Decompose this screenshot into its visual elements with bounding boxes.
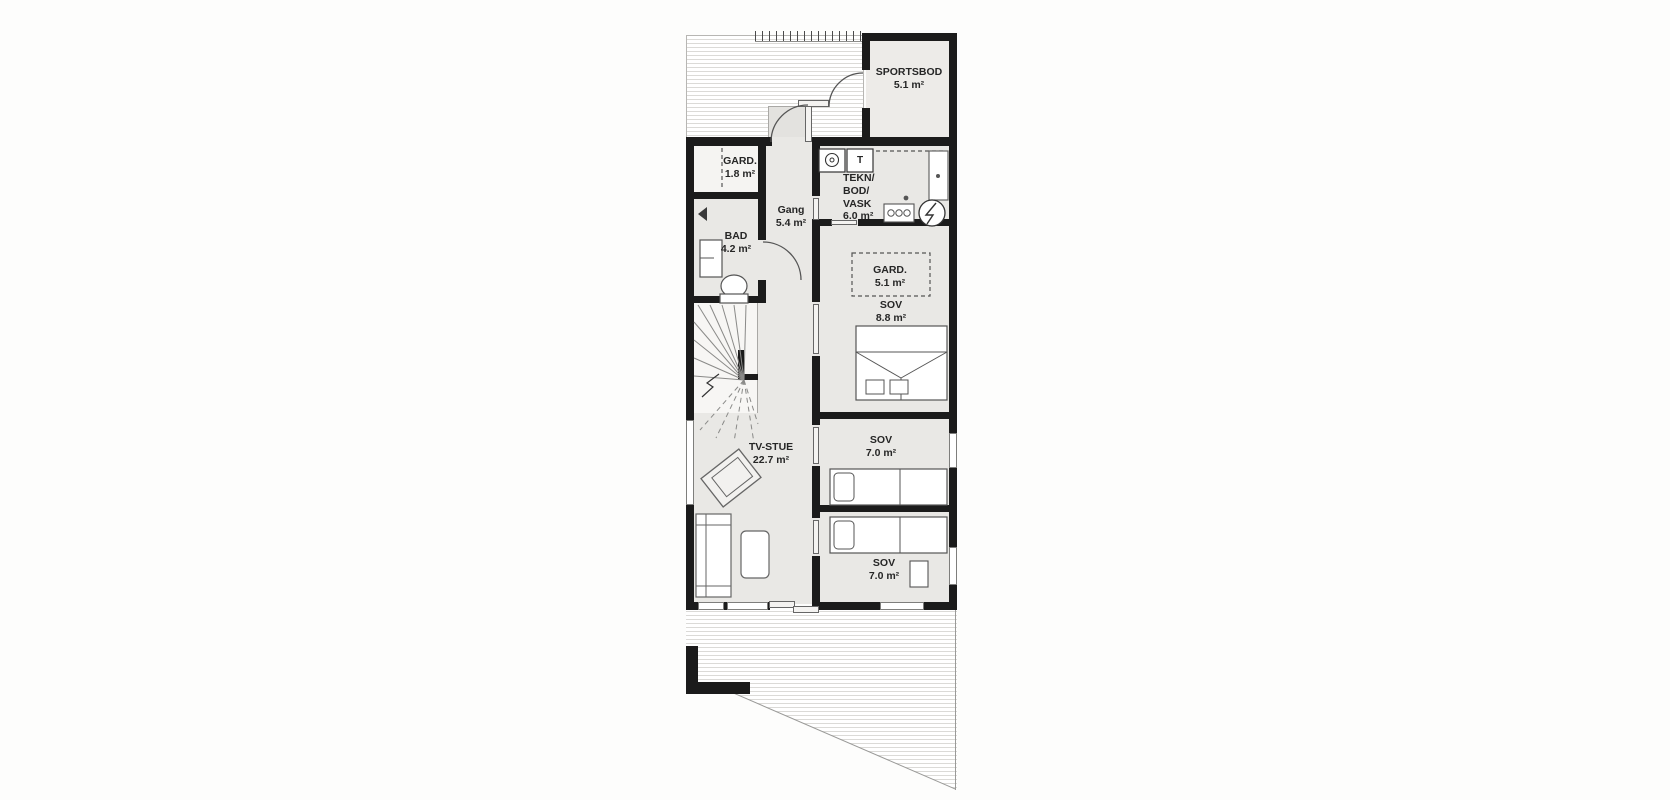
- room-label-bad: BAD 4.2 m²: [721, 230, 751, 256]
- label-area: 22.7 m²: [749, 454, 793, 467]
- wall-gard-bad-divider: [692, 192, 758, 199]
- label-area: 5.1 m²: [876, 79, 943, 92]
- room-label-tvstue: TV-STUE 22.7 m²: [749, 441, 793, 467]
- label-text: Gang: [776, 204, 806, 217]
- label-area: 6.0 m²: [843, 210, 875, 223]
- label-text: GARD.: [723, 155, 757, 168]
- sportsbod-door-leaf: [798, 100, 829, 107]
- room-label-sportsbod: SPORTSBOD 5.1 m²: [876, 66, 943, 92]
- wall-tekn-bottom-left: [812, 219, 832, 226]
- label-area: 7.0 m²: [866, 447, 896, 460]
- label-text: SOV: [869, 557, 899, 570]
- label-text: TV-STUE: [749, 441, 793, 454]
- room-label-sov-master: SOV 8.8 m²: [876, 299, 906, 325]
- label-text: VASK: [843, 198, 875, 211]
- window-sov-mid-right: [949, 433, 957, 468]
- dryer-letter-text: T: [857, 155, 863, 166]
- sliding-door-leaf-2: [793, 606, 819, 613]
- wall-bottom-1: [686, 602, 698, 610]
- window-sov-bottom-right: [949, 547, 957, 585]
- room-label-sov-bottom: SOV 7.0 m²: [869, 557, 899, 583]
- room-label-gard-entry: GARD. 1.8 m²: [723, 155, 757, 181]
- stairwell: [692, 303, 758, 413]
- wall-sov-mid-bottom: [812, 505, 957, 512]
- window-tvstue-bottom-1: [698, 602, 724, 610]
- room-label-sov-mid: SOV 7.0 m²: [866, 434, 896, 460]
- window-tvstue-left: [686, 420, 694, 505]
- wall-left-lower: [686, 505, 694, 610]
- label-area: 7.0 m²: [869, 570, 899, 583]
- deck-corner-bracket-h: [686, 682, 750, 694]
- room-label-gang: Gang 5.4 m²: [776, 204, 806, 230]
- sov-master-door-leaf: [813, 304, 819, 354]
- wall-bottom-5: [924, 602, 957, 610]
- wall-gard-bad-right-upper: [758, 143, 766, 240]
- label-text: SPORTSBOD: [876, 66, 943, 79]
- sportsbod-wall-right: [949, 33, 957, 146]
- dryer-letter: T: [857, 155, 863, 167]
- wall-bad-bottom: [692, 296, 766, 303]
- room-label-tekn: TEKN/ BOD/ VASK 6.0 m²: [843, 172, 875, 223]
- tekn-door-leaf: [813, 198, 819, 220]
- sov-bottom-door-leaf: [813, 520, 819, 554]
- label-text: TEKN/: [843, 172, 875, 185]
- label-text: GARD.: [873, 264, 907, 277]
- window-tvstue-bottom-2: [727, 602, 768, 610]
- label-text: BAD: [721, 230, 751, 243]
- window-sov-bottom: [880, 602, 924, 610]
- sliding-door-leaf-1: [769, 601, 795, 608]
- entry-door-leaf: [805, 102, 812, 142]
- sov-mid-door-leaf: [813, 427, 819, 464]
- sportsbod-wall-left-upper: [862, 33, 870, 70]
- deck-bottom: [686, 608, 957, 790]
- room-label-gard-sov: GARD. 5.1 m²: [873, 264, 907, 290]
- wall-corridor-1: [812, 143, 820, 196]
- wall-left-upper: [686, 137, 694, 420]
- stair-newel-h: [738, 374, 758, 380]
- wall-bottom-4: [816, 602, 880, 610]
- deck-top-tick-band: [755, 31, 865, 42]
- deck-bottom-right-edge: [955, 608, 956, 790]
- label-text: BOD/: [843, 185, 875, 198]
- label-text: SOV: [866, 434, 896, 447]
- label-area: 1.8 m²: [723, 168, 757, 181]
- label-area: 4.2 m²: [721, 243, 751, 256]
- wall-corridor-5: [812, 556, 820, 610]
- label-area: 5.4 m²: [776, 217, 806, 230]
- wall-corridor-2: [812, 222, 820, 302]
- label-area: 5.1 m²: [873, 277, 907, 290]
- wall-top-right: [812, 137, 957, 146]
- sportsbod-wall-top: [862, 33, 957, 41]
- wall-sov-master-bottom: [812, 412, 957, 419]
- wall-right-upper: [949, 137, 957, 433]
- label-area: 8.8 m²: [876, 312, 906, 325]
- sportsbod-wall-left-lower: [862, 108, 870, 146]
- label-text: SOV: [876, 299, 906, 312]
- floor-plan: SPORTSBOD 5.1 m² GARD. 1.8 m² Gang 5.4 m…: [0, 0, 1670, 800]
